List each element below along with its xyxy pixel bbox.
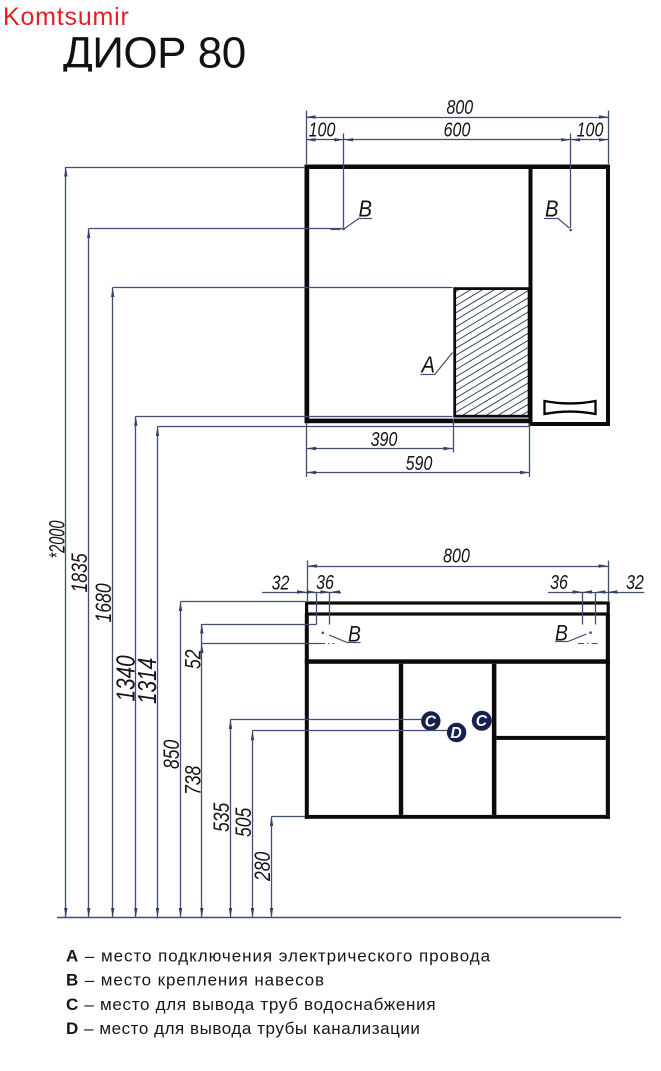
svg-text:A: A xyxy=(420,351,435,378)
svg-text:505: 505 xyxy=(232,807,256,837)
svg-text:D: D xyxy=(450,725,461,742)
svg-text:800: 800 xyxy=(446,97,473,119)
svg-text:1314: 1314 xyxy=(133,658,162,704)
svg-text:535: 535 xyxy=(210,802,234,832)
svg-text:600: 600 xyxy=(444,119,471,141)
svg-text:738: 738 xyxy=(182,766,206,795)
svg-text:B: B xyxy=(359,195,373,222)
svg-text:36: 36 xyxy=(550,571,569,593)
svg-text:Komtsumir: Komtsumir xyxy=(3,3,130,31)
svg-text:C: C xyxy=(425,714,437,731)
svg-text:390: 390 xyxy=(371,428,398,450)
svg-text:ДИОР 80: ДИОР 80 xyxy=(63,29,246,78)
svg-text:32: 32 xyxy=(626,571,644,593)
svg-text:32: 32 xyxy=(272,572,290,594)
svg-text:280: 280 xyxy=(251,852,275,882)
svg-text:B – место крепления навесов: B – место крепления навесов xyxy=(66,971,325,990)
svg-text:C – место для вывода труб водо: C – место для вывода труб водоснабжения xyxy=(66,995,436,1014)
svg-text:A – место подключения электрич: A – место подключения электрического про… xyxy=(66,947,491,966)
svg-text:*2000: *2000 xyxy=(44,520,69,558)
svg-text:800: 800 xyxy=(443,545,470,567)
svg-text:1835: 1835 xyxy=(68,553,92,593)
svg-text:D – место для вывода трубы кан: D – место для вывода трубы канализации xyxy=(66,1019,420,1038)
svg-text:850: 850 xyxy=(160,740,184,769)
svg-text:C: C xyxy=(476,713,488,730)
svg-text:1680: 1680 xyxy=(92,583,116,622)
svg-text:52: 52 xyxy=(182,649,206,669)
svg-text:B: B xyxy=(545,195,559,222)
svg-text:100: 100 xyxy=(309,119,336,141)
svg-text:100: 100 xyxy=(577,119,604,141)
svg-text:590: 590 xyxy=(406,452,433,474)
svg-text:36: 36 xyxy=(316,571,335,593)
